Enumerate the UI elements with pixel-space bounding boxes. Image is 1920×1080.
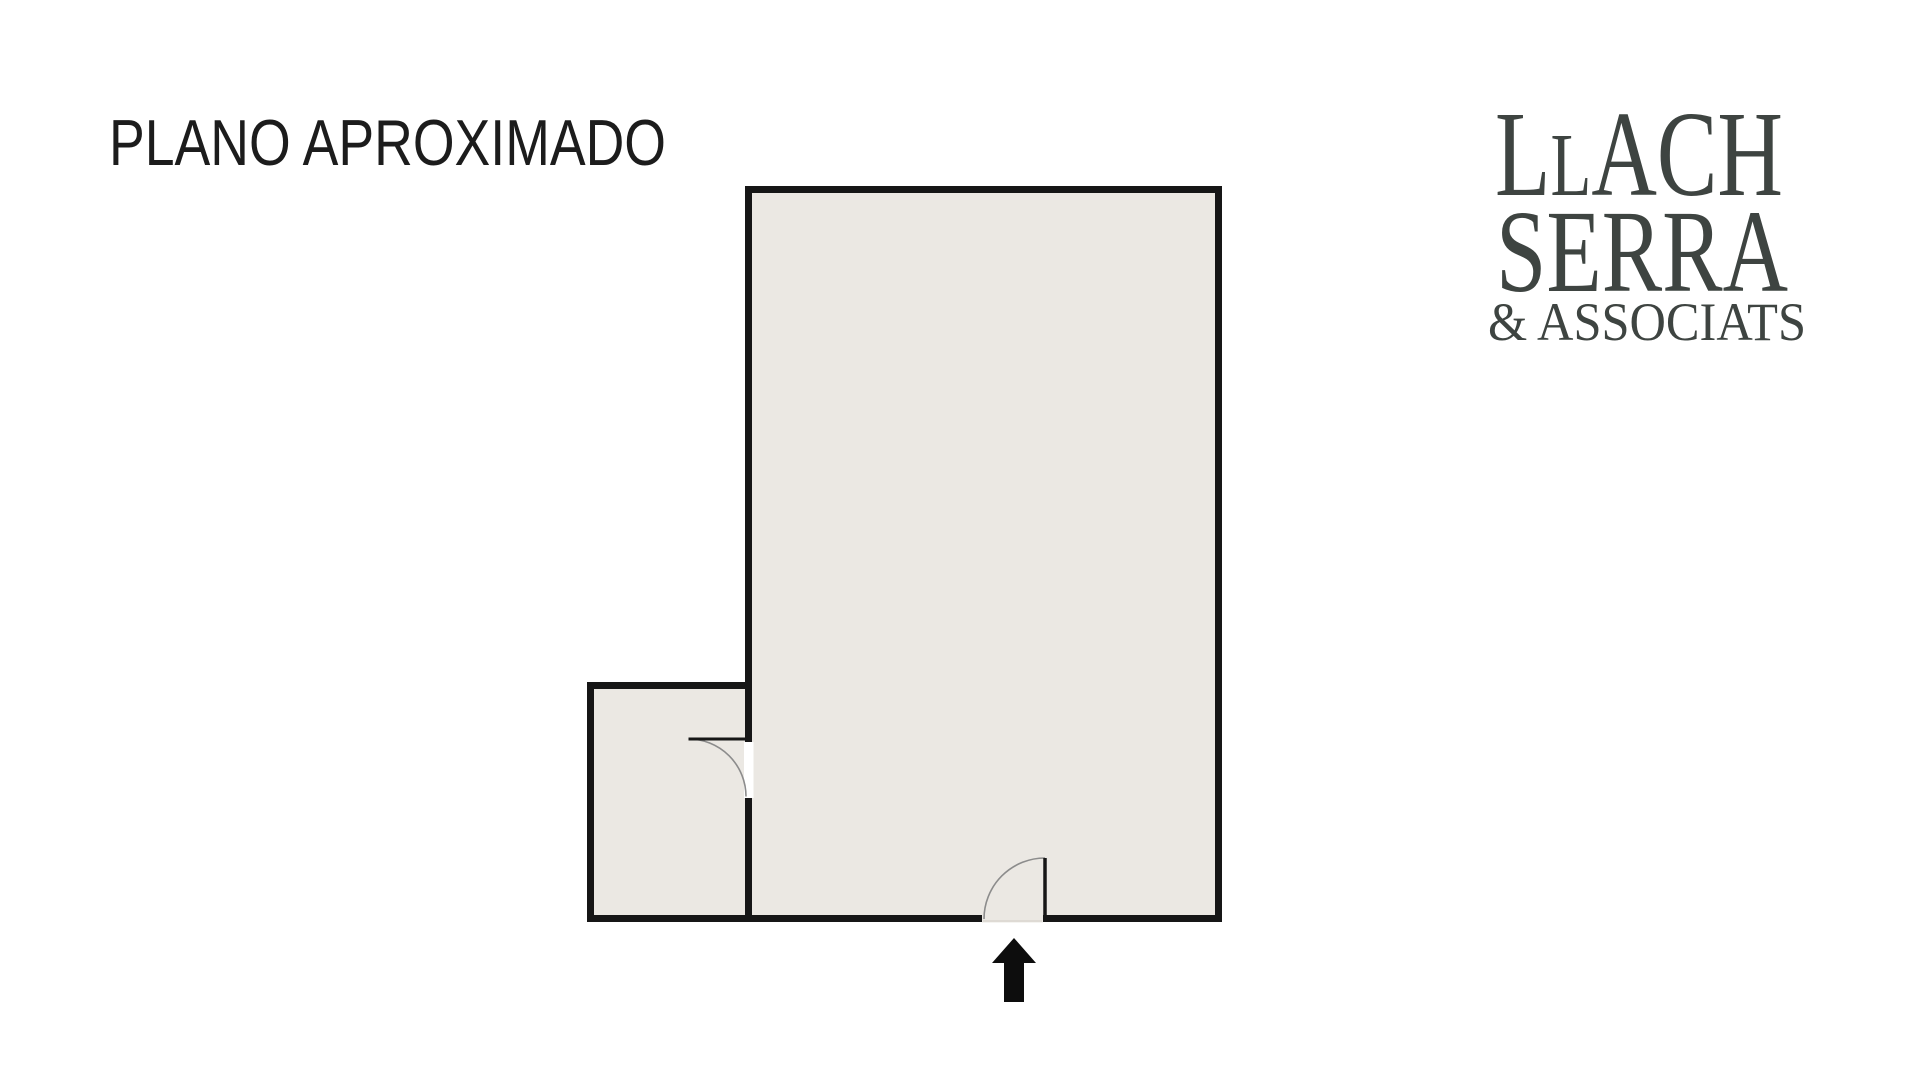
main-room — [749, 190, 1219, 919]
floor-plan — [591, 190, 1219, 1003]
agency-logo: LLACH SERRA & ASSOCIATS — [1488, 87, 1806, 352]
page: PLANO APROXIMADO LLACH SERRA & ASSOCIATS — [0, 0, 1920, 1080]
annex-room — [591, 686, 749, 919]
floor-plan-scene: PLANO APROXIMADO LLACH SERRA & ASSOCIATS — [0, 0, 1920, 1080]
page-title: PLANO APROXIMADO — [109, 106, 666, 179]
logo-line-3: & ASSOCIATS — [1488, 292, 1806, 352]
entrance-arrow-icon — [992, 938, 1036, 1002]
